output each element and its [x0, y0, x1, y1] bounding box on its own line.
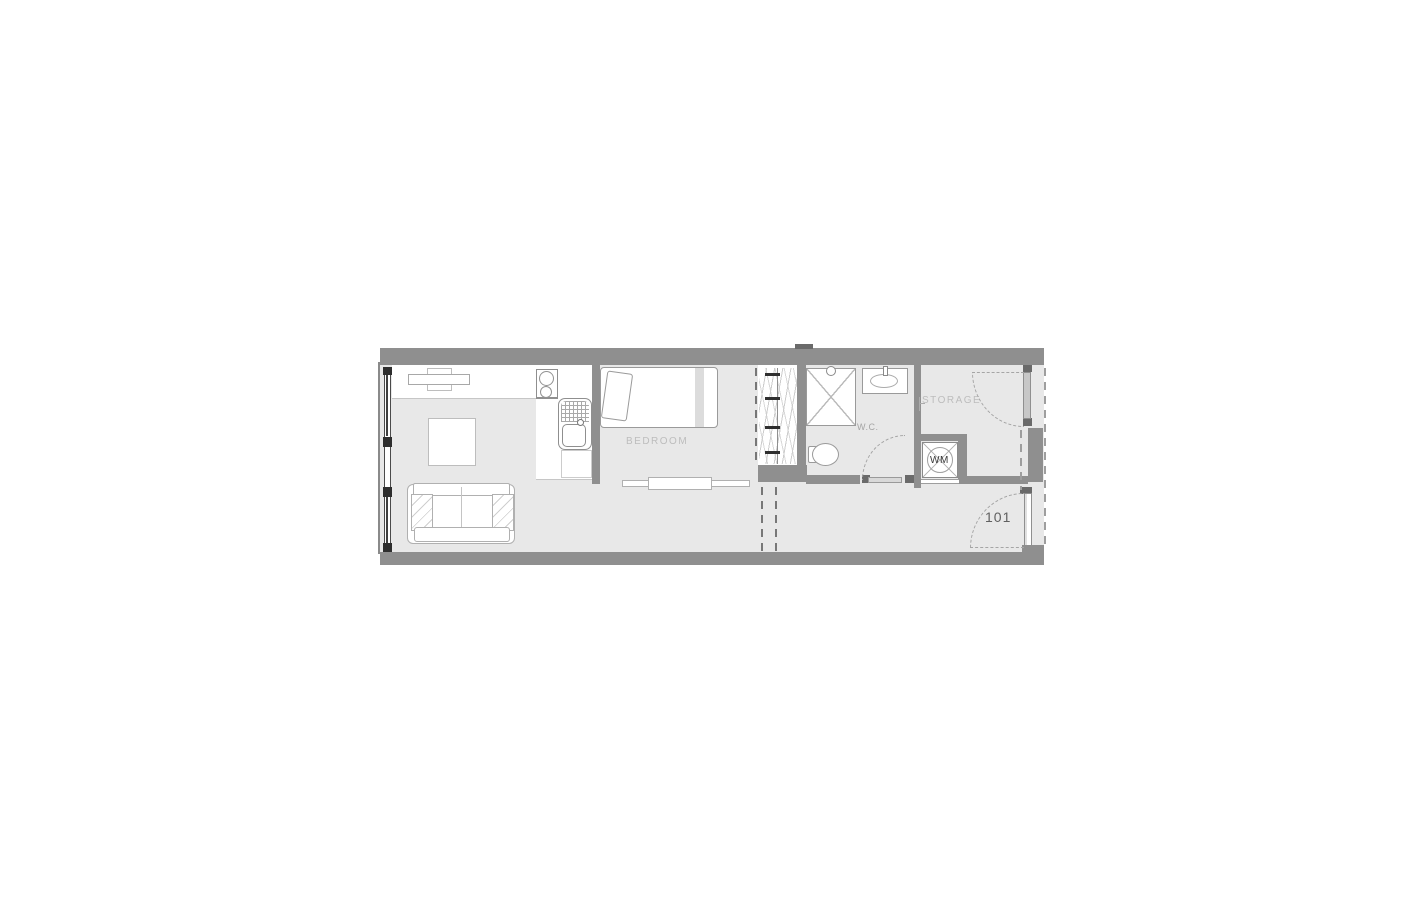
sofa-seat-front	[414, 527, 510, 542]
storage-door-top-frame	[1023, 365, 1032, 372]
entry-door-leaf	[1024, 493, 1032, 546]
wall-bathroom-bottom	[806, 475, 860, 484]
storage-label: STORAGE	[922, 395, 981, 406]
unit-number: 101	[985, 509, 1011, 525]
window-outer-line	[378, 362, 380, 554]
closet-rail	[777, 368, 778, 464]
storage-frame-tick-h	[919, 403, 925, 404]
corridor-boundary-dash	[1044, 368, 1046, 549]
bathroom-sink-basin	[870, 374, 898, 388]
wall-closet-bottom	[758, 465, 807, 482]
closet-tick-1	[765, 373, 780, 376]
wm-niche-front	[921, 479, 959, 484]
stove-burner-front	[540, 386, 552, 398]
window-mullion-1	[383, 367, 392, 375]
dresser-inner	[648, 477, 712, 490]
stove-burner-rear	[539, 371, 554, 386]
storage-frame-tick-v	[919, 397, 920, 411]
right-wall-face-dash	[1020, 430, 1022, 490]
closet-open-front-dash	[755, 368, 757, 464]
hall-boundary-dash-1	[761, 487, 763, 552]
wc-label: W.C.	[857, 422, 879, 432]
bed-blanket-fold	[695, 368, 704, 427]
closet-tick-4	[765, 451, 780, 454]
desk-shelf	[408, 374, 470, 385]
wall-bathroom-storage	[914, 365, 921, 488]
shower-head	[826, 366, 836, 376]
wall-top	[380, 348, 1044, 365]
window-pane-upper	[386, 374, 388, 436]
sink-bowl	[562, 424, 586, 447]
wall-entry-corner	[1022, 545, 1044, 553]
toilet-bowl	[812, 443, 839, 466]
sofa-center-seam	[461, 487, 462, 528]
sink-faucet	[577, 419, 584, 426]
wall-right-block	[1028, 428, 1043, 482]
sofa-armrest-left	[411, 494, 433, 531]
sofa-armrest-right	[492, 494, 514, 531]
bedroom-label: BEDROOM	[626, 436, 688, 447]
wall-bottom	[380, 552, 1044, 565]
sink-drain-rack	[561, 401, 589, 422]
window-pane-lower	[386, 497, 388, 543]
bath-door-hinge	[905, 475, 914, 483]
shower-tray	[806, 368, 856, 426]
window-mullion-2	[383, 437, 392, 447]
kitchen-counter-lower	[561, 450, 592, 478]
wall-closet-right	[797, 365, 806, 468]
window-mullion-3	[383, 487, 392, 497]
closet-hanging-clothes	[759, 368, 797, 464]
storage-door-hinge	[1023, 418, 1032, 426]
hall-boundary-dash-2	[775, 487, 777, 552]
closet-tick-2	[765, 397, 780, 400]
coffee-table	[428, 418, 476, 466]
window-mullion-4	[383, 543, 392, 552]
washing-machine-label: WM	[930, 455, 949, 466]
closet-tick-3	[765, 426, 780, 429]
wall-kitchen-bedroom	[592, 365, 600, 484]
storage-door-leaf	[1023, 372, 1031, 419]
bathroom-sink-tap	[883, 366, 888, 376]
floor-plan: BEDROOM W.C. WM STORAGE 101	[0, 0, 1422, 914]
wall-top-notch	[795, 344, 813, 349]
wall-hall-storage	[958, 476, 1028, 484]
